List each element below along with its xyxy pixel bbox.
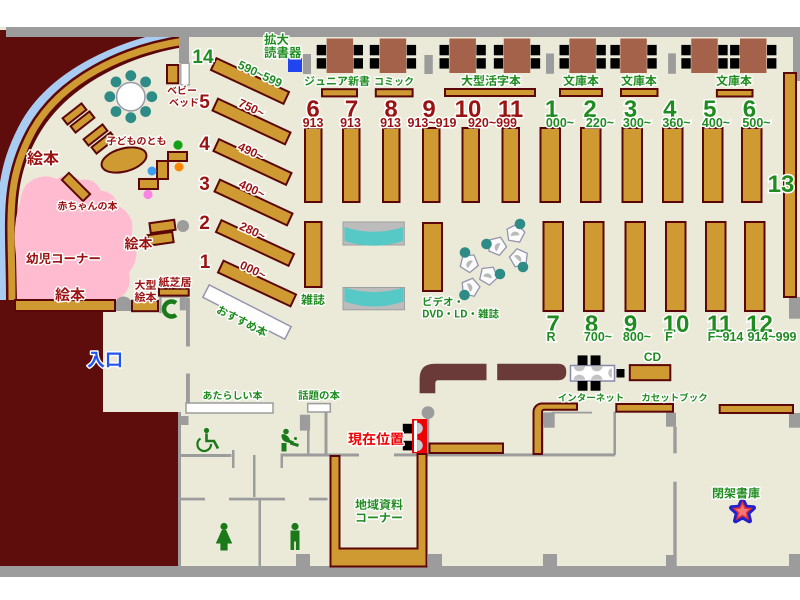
- svg-text:913: 913: [340, 116, 361, 130]
- svg-text:700~: 700~: [584, 330, 612, 344]
- svg-text:13: 13: [768, 171, 795, 198]
- svg-text:913~919: 913~919: [407, 116, 456, 130]
- svg-text:3: 3: [199, 174, 210, 195]
- svg-text:913: 913: [380, 116, 401, 130]
- svg-text:220~: 220~: [586, 116, 614, 130]
- svg-text:800~: 800~: [623, 330, 651, 344]
- svg-text:4: 4: [199, 134, 210, 155]
- svg-text:14: 14: [192, 47, 214, 68]
- svg-text:914~999: 914~999: [747, 330, 796, 344]
- svg-text:F~914: F~914: [708, 330, 744, 344]
- svg-text:360~: 360~: [662, 116, 690, 130]
- svg-text:R: R: [546, 330, 555, 344]
- svg-text:2: 2: [199, 213, 210, 234]
- svg-text:000~: 000~: [546, 116, 574, 130]
- svg-text:913: 913: [303, 116, 324, 130]
- svg-text:500~: 500~: [742, 116, 770, 130]
- svg-text:F: F: [665, 330, 673, 344]
- svg-text:5: 5: [199, 92, 210, 113]
- svg-text:400~: 400~: [702, 116, 730, 130]
- svg-text:300~: 300~: [623, 116, 651, 130]
- svg-text:1: 1: [200, 252, 211, 273]
- svg-text:CD: CD: [644, 350, 662, 364]
- svg-text:920~999: 920~999: [468, 116, 517, 130]
